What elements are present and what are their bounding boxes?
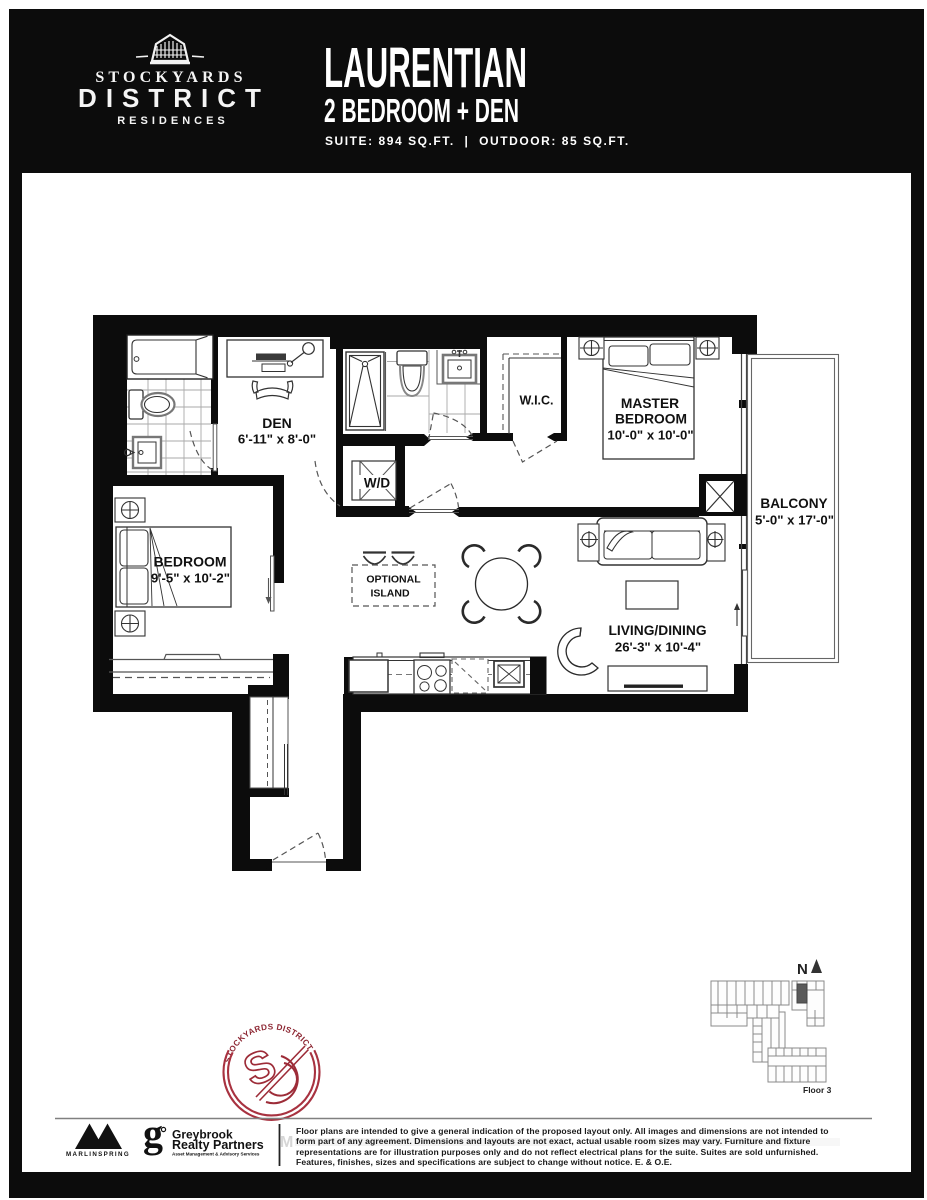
svg-text:9'-5" x 10'-2": 9'-5" x 10'-2" (151, 571, 230, 586)
svg-text:MARLINSPRING: MARLINSPRING (66, 1151, 130, 1158)
svg-text:5'-0" x 17'-0": 5'-0" x 17'-0" (755, 513, 834, 528)
svg-text:Realty Partners: Realty Partners (172, 1138, 264, 1152)
svg-text:6'-11" x 8'-0": 6'-11" x 8'-0" (238, 432, 316, 447)
svg-text:S: S (237, 1040, 283, 1097)
svg-text:Asset Management & Advisory Se: Asset Management & Advisory Services (172, 1151, 260, 1156)
svg-text:W/D: W/D (364, 476, 390, 491)
svg-text:ISLAND: ISLAND (370, 588, 410, 600)
svg-text:MASTER: MASTER (621, 396, 679, 411)
svg-text:DEN: DEN (262, 415, 292, 431)
svg-text:M: M (280, 1134, 293, 1151)
svg-text:BEDROOM: BEDROOM (615, 412, 687, 427)
svg-text:26'-3" x 10'-4": 26'-3" x 10'-4" (615, 640, 701, 655)
svg-text:OPTIONAL: OPTIONAL (366, 574, 421, 586)
svg-text:LIVING/DINING: LIVING/DINING (608, 623, 706, 638)
svg-text:BALCONY: BALCONY (760, 496, 827, 511)
svg-text:STOCKYARDS DISTRICT: STOCKYARDS DISTRICT (223, 1022, 315, 1063)
svg-text:W.I.C.: W.I.C. (519, 394, 553, 408)
svg-text:10'-0" x 10'-0": 10'-0" x 10'-0" (607, 428, 693, 443)
svg-text:Greybrook: Greybrook (172, 1128, 233, 1142)
svg-text:Floor 3: Floor 3 (803, 1085, 832, 1095)
svg-text:BEDROOM: BEDROOM (153, 554, 226, 570)
svg-text:N: N (797, 961, 808, 978)
svg-text:g: g (143, 1111, 163, 1156)
